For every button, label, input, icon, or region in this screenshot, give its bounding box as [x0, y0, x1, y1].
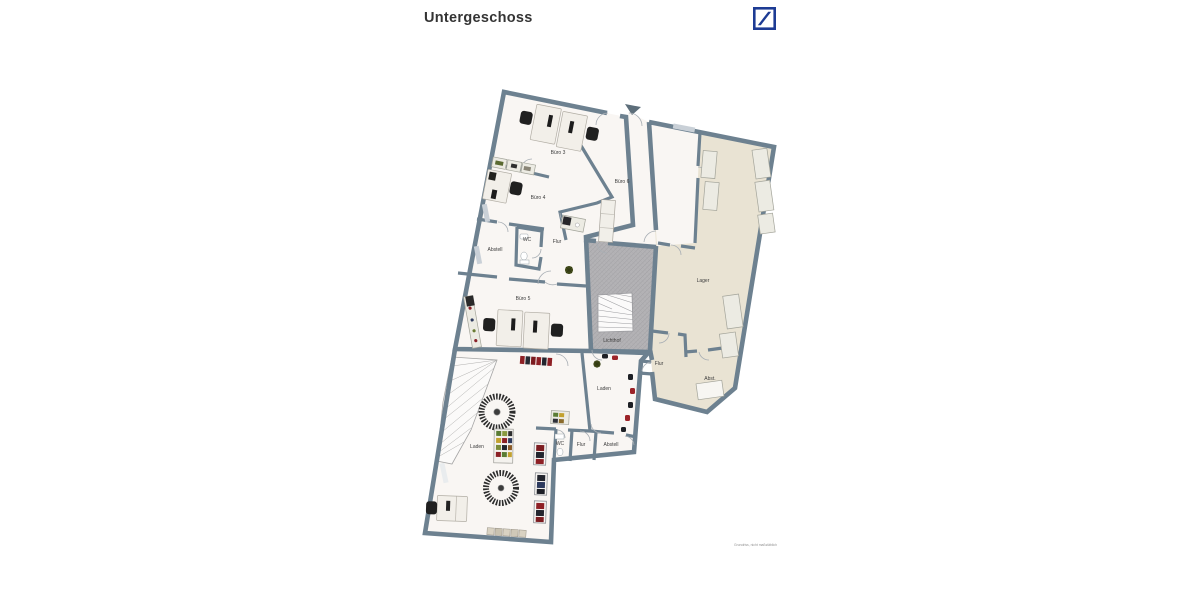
room-label-flur-right: Flur — [655, 361, 664, 367]
printer-buero5 — [465, 295, 475, 306]
plant-upper — [565, 266, 573, 274]
plant-shop — [593, 360, 600, 367]
floorplan-image: Büro 3 Büro 4 Büro 6 WC Flur Abstell Bür… — [0, 0, 1200, 600]
room-label-buero3: Büro 3 — [551, 150, 566, 156]
room-label-buero4: Büro 4 — [531, 195, 546, 201]
plan-caption: Grundriss, nicht maßstäblich — [734, 543, 777, 547]
wardrobe-buero6 — [599, 200, 616, 243]
room-label-wc-upper: WC — [523, 237, 532, 243]
small-shelf-lower — [551, 411, 570, 425]
room-label-buero6: Büro 6 — [615, 179, 630, 185]
room-label-laden-right: Laden — [597, 386, 611, 392]
room-label-wc-lower: WC — [556, 441, 565, 447]
room-label-buero5: Büro 5 — [516, 296, 531, 302]
merchandise-shelf — [494, 429, 514, 463]
room-label-flur-upper: Flur — [553, 239, 562, 245]
lightwell-stairs — [598, 293, 633, 332]
room-label-lichthof: Lichthof — [603, 338, 621, 344]
room-label-abstell-lower: Abstell — [603, 442, 618, 448]
room-label-laden-left: Laden — [470, 444, 484, 450]
room-label-abst: Abst. — [704, 376, 715, 382]
room-label-lager: Lager — [697, 278, 710, 284]
room-label-flur-lower: Flur — [577, 442, 586, 448]
room-label-abstell-upper: Abstell — [487, 247, 502, 253]
